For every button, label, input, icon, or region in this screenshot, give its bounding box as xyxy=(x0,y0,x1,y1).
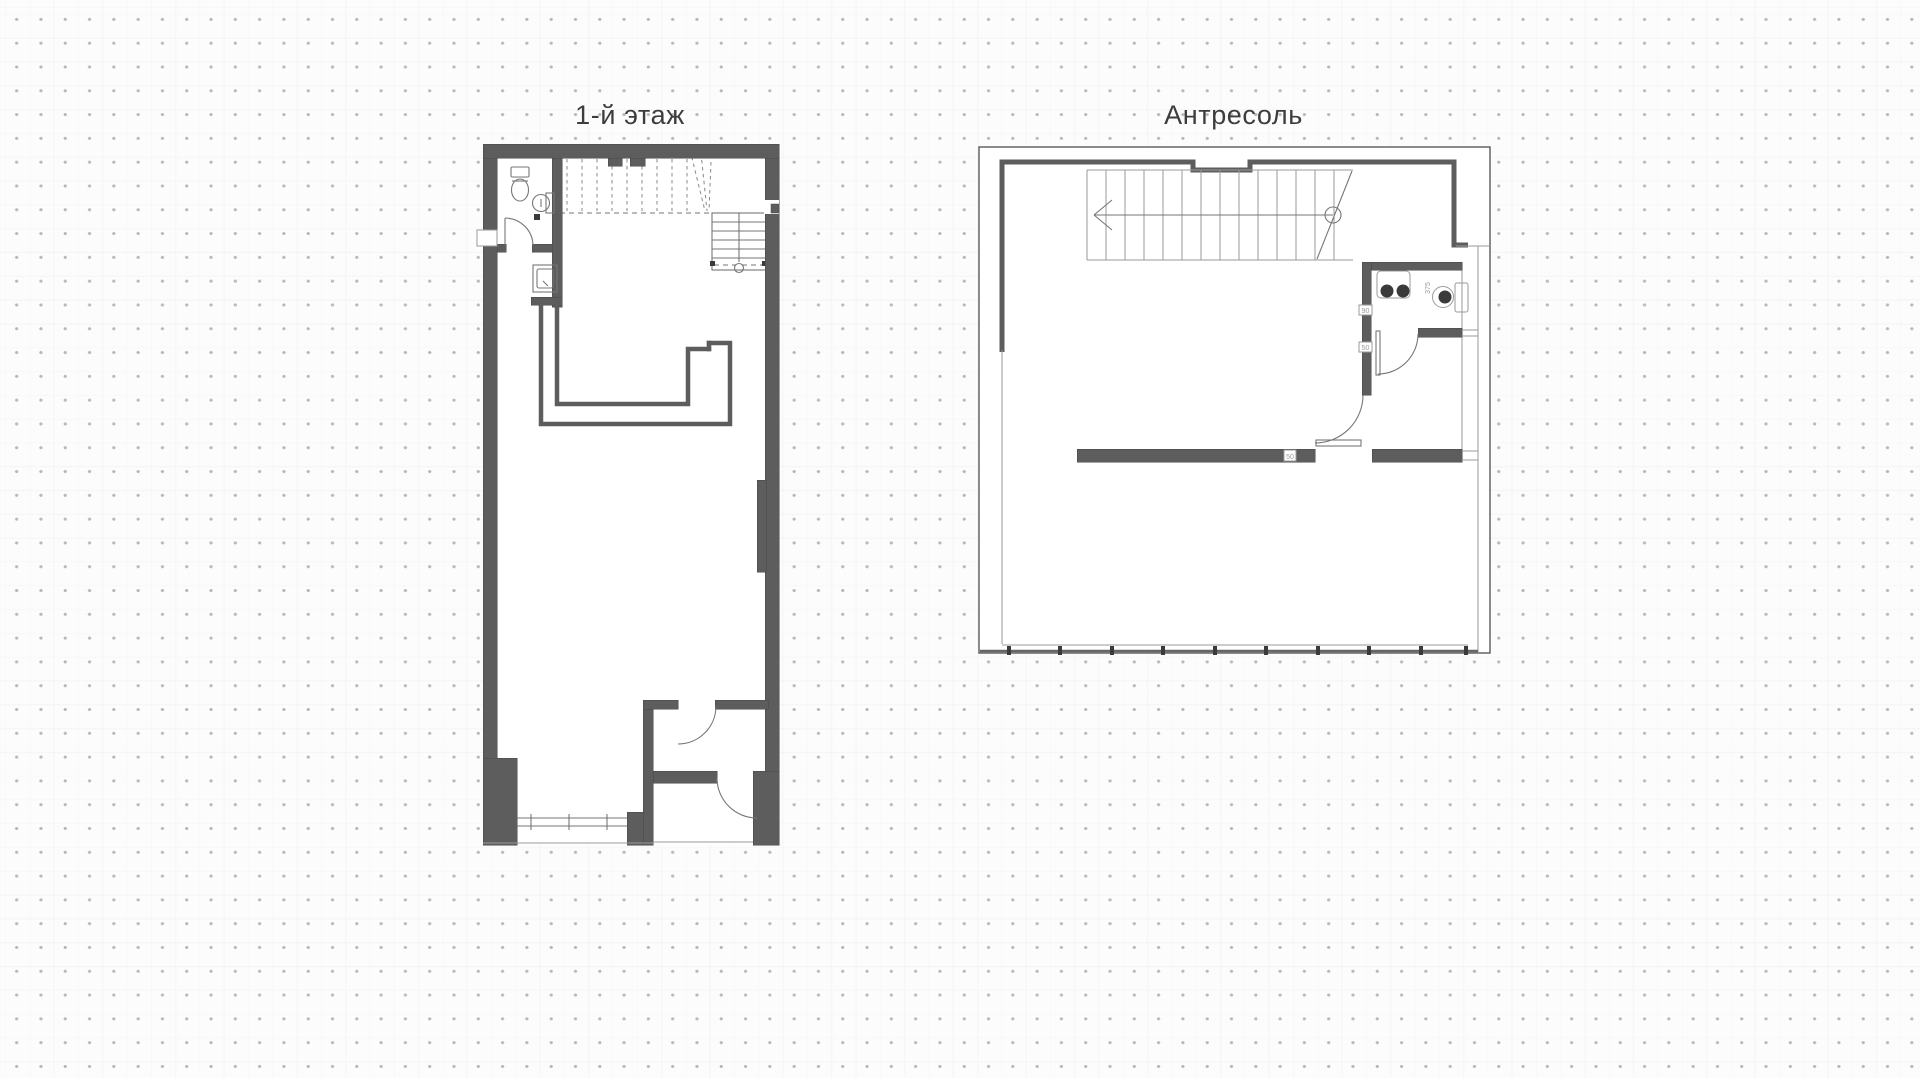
side-wall-opening xyxy=(477,230,497,246)
dim-50-label: 50 xyxy=(1362,345,1370,352)
partition-wall: 50 xyxy=(1077,449,1478,462)
floor-area xyxy=(979,147,1490,653)
right-wall-opening xyxy=(764,200,779,214)
first-floor-plan xyxy=(476,142,782,848)
mezzanine-plan: 375 90 50 50 xyxy=(977,145,1494,657)
wall-50-label: 50 xyxy=(1286,454,1294,461)
dim-90-label: 90 xyxy=(1362,308,1370,315)
dim-375-label: 375 xyxy=(1425,282,1432,294)
floor-plans-canvas: 1-й этаж Антресоль xyxy=(0,0,1920,1078)
first-floor-title: 1-й этаж xyxy=(477,101,783,129)
mezzanine-title: Антресоль xyxy=(977,101,1490,129)
